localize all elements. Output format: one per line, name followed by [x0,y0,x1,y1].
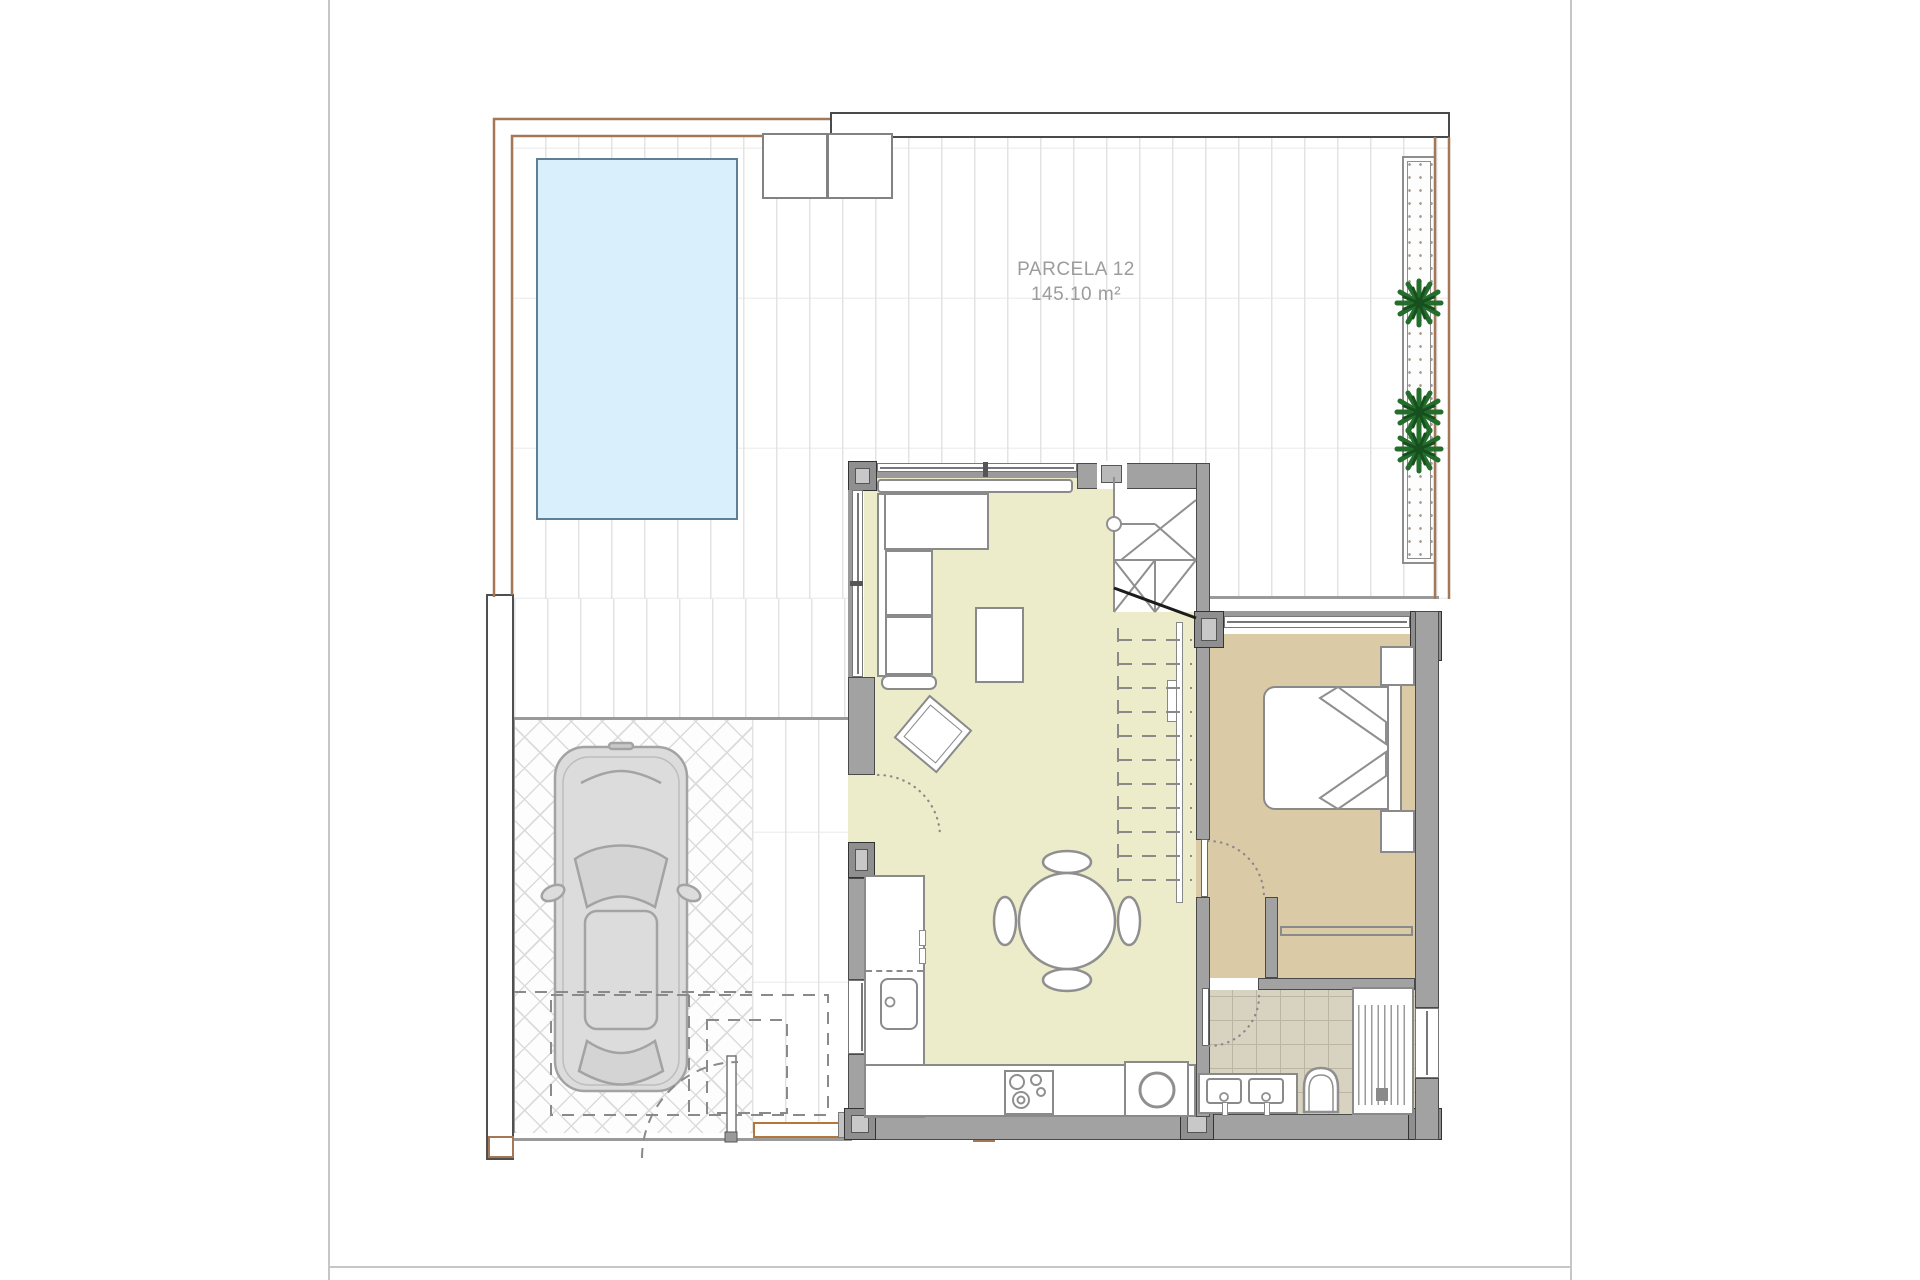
living-window-north-sill [877,472,1077,478]
planter-strip [1402,156,1436,564]
shower-drain [1376,1088,1388,1101]
window-mullion [983,462,988,477]
east-wall-lower [1415,1078,1439,1140]
sheet-frame-bottom-line [328,1266,1572,1268]
entry-door-leaf [1101,465,1122,483]
east-wall-upper [1415,611,1439,1008]
terrace-decking-side [752,719,848,1133]
coffee-table [975,607,1024,683]
sheet-frame-right-line [1570,0,1572,1280]
shower-window-east [1415,1008,1439,1078]
entry-step [753,1122,849,1138]
sofa-backrest [877,479,1073,493]
perimeter-fence-band [830,112,1450,138]
floor-plan-canvas: PARCELA 12 145.10 m² [0,0,1920,1280]
window-mullion [850,581,863,586]
parcel-area: 145.10 m² [946,283,1206,308]
stair-landing-floor [1114,477,1196,612]
terrace-decking-left [514,599,852,719]
sofa-chaise [884,493,989,550]
counter-tab [919,930,926,946]
stair-handrail [1176,622,1183,903]
boundary-marker [488,1136,514,1158]
sofa-seat-cushion [885,550,933,616]
parcel-label: PARCELA 12 145.10 m² [946,258,1206,307]
south-wall [846,1114,1440,1140]
cooktop [1004,1070,1054,1115]
wing-column-nw [1194,611,1224,648]
sofa-seat-cushion [885,616,933,675]
swimming-pool [536,158,738,520]
storage-unit-left [762,133,828,199]
double-bed [1263,686,1389,810]
faucet-stem [1222,1102,1228,1116]
corner-column-nw [848,461,877,491]
bedroom-door-leaf [1201,839,1208,897]
parcel-name: PARCELA 12 [946,258,1206,283]
entrance-opening [848,775,875,842]
washing-machine [1124,1061,1189,1117]
boundary-wall-strip [486,594,514,1160]
bathroom-door-leaf [1202,988,1209,1046]
living-window-north [877,463,1077,472]
bedroom-window-north [1224,616,1410,628]
faucet-stem [1264,1102,1270,1116]
junction-wall-upper [1196,463,1210,840]
bed-headboard [1387,682,1402,814]
counter-divider [866,970,923,972]
nightstand-bottom [1380,810,1415,853]
counter-tab [919,948,926,964]
kitchen-sink [880,978,918,1030]
vanity-sink [1248,1078,1284,1104]
west-column [848,842,875,878]
west-wall-a [848,677,875,775]
storage-unit-right [827,133,893,199]
sofa-armrest [881,675,937,690]
bedroom-stub-wall [1265,897,1278,978]
vanity-sink [1206,1078,1242,1104]
garage-paving [514,720,752,1133]
wardrobe-sliding-doors [1280,926,1413,936]
nightstand-top [1380,646,1415,686]
plot-bottom-line [514,1138,852,1141]
sheet-frame-left-line [328,0,330,1280]
stair-handrail-bracket [1167,680,1177,722]
